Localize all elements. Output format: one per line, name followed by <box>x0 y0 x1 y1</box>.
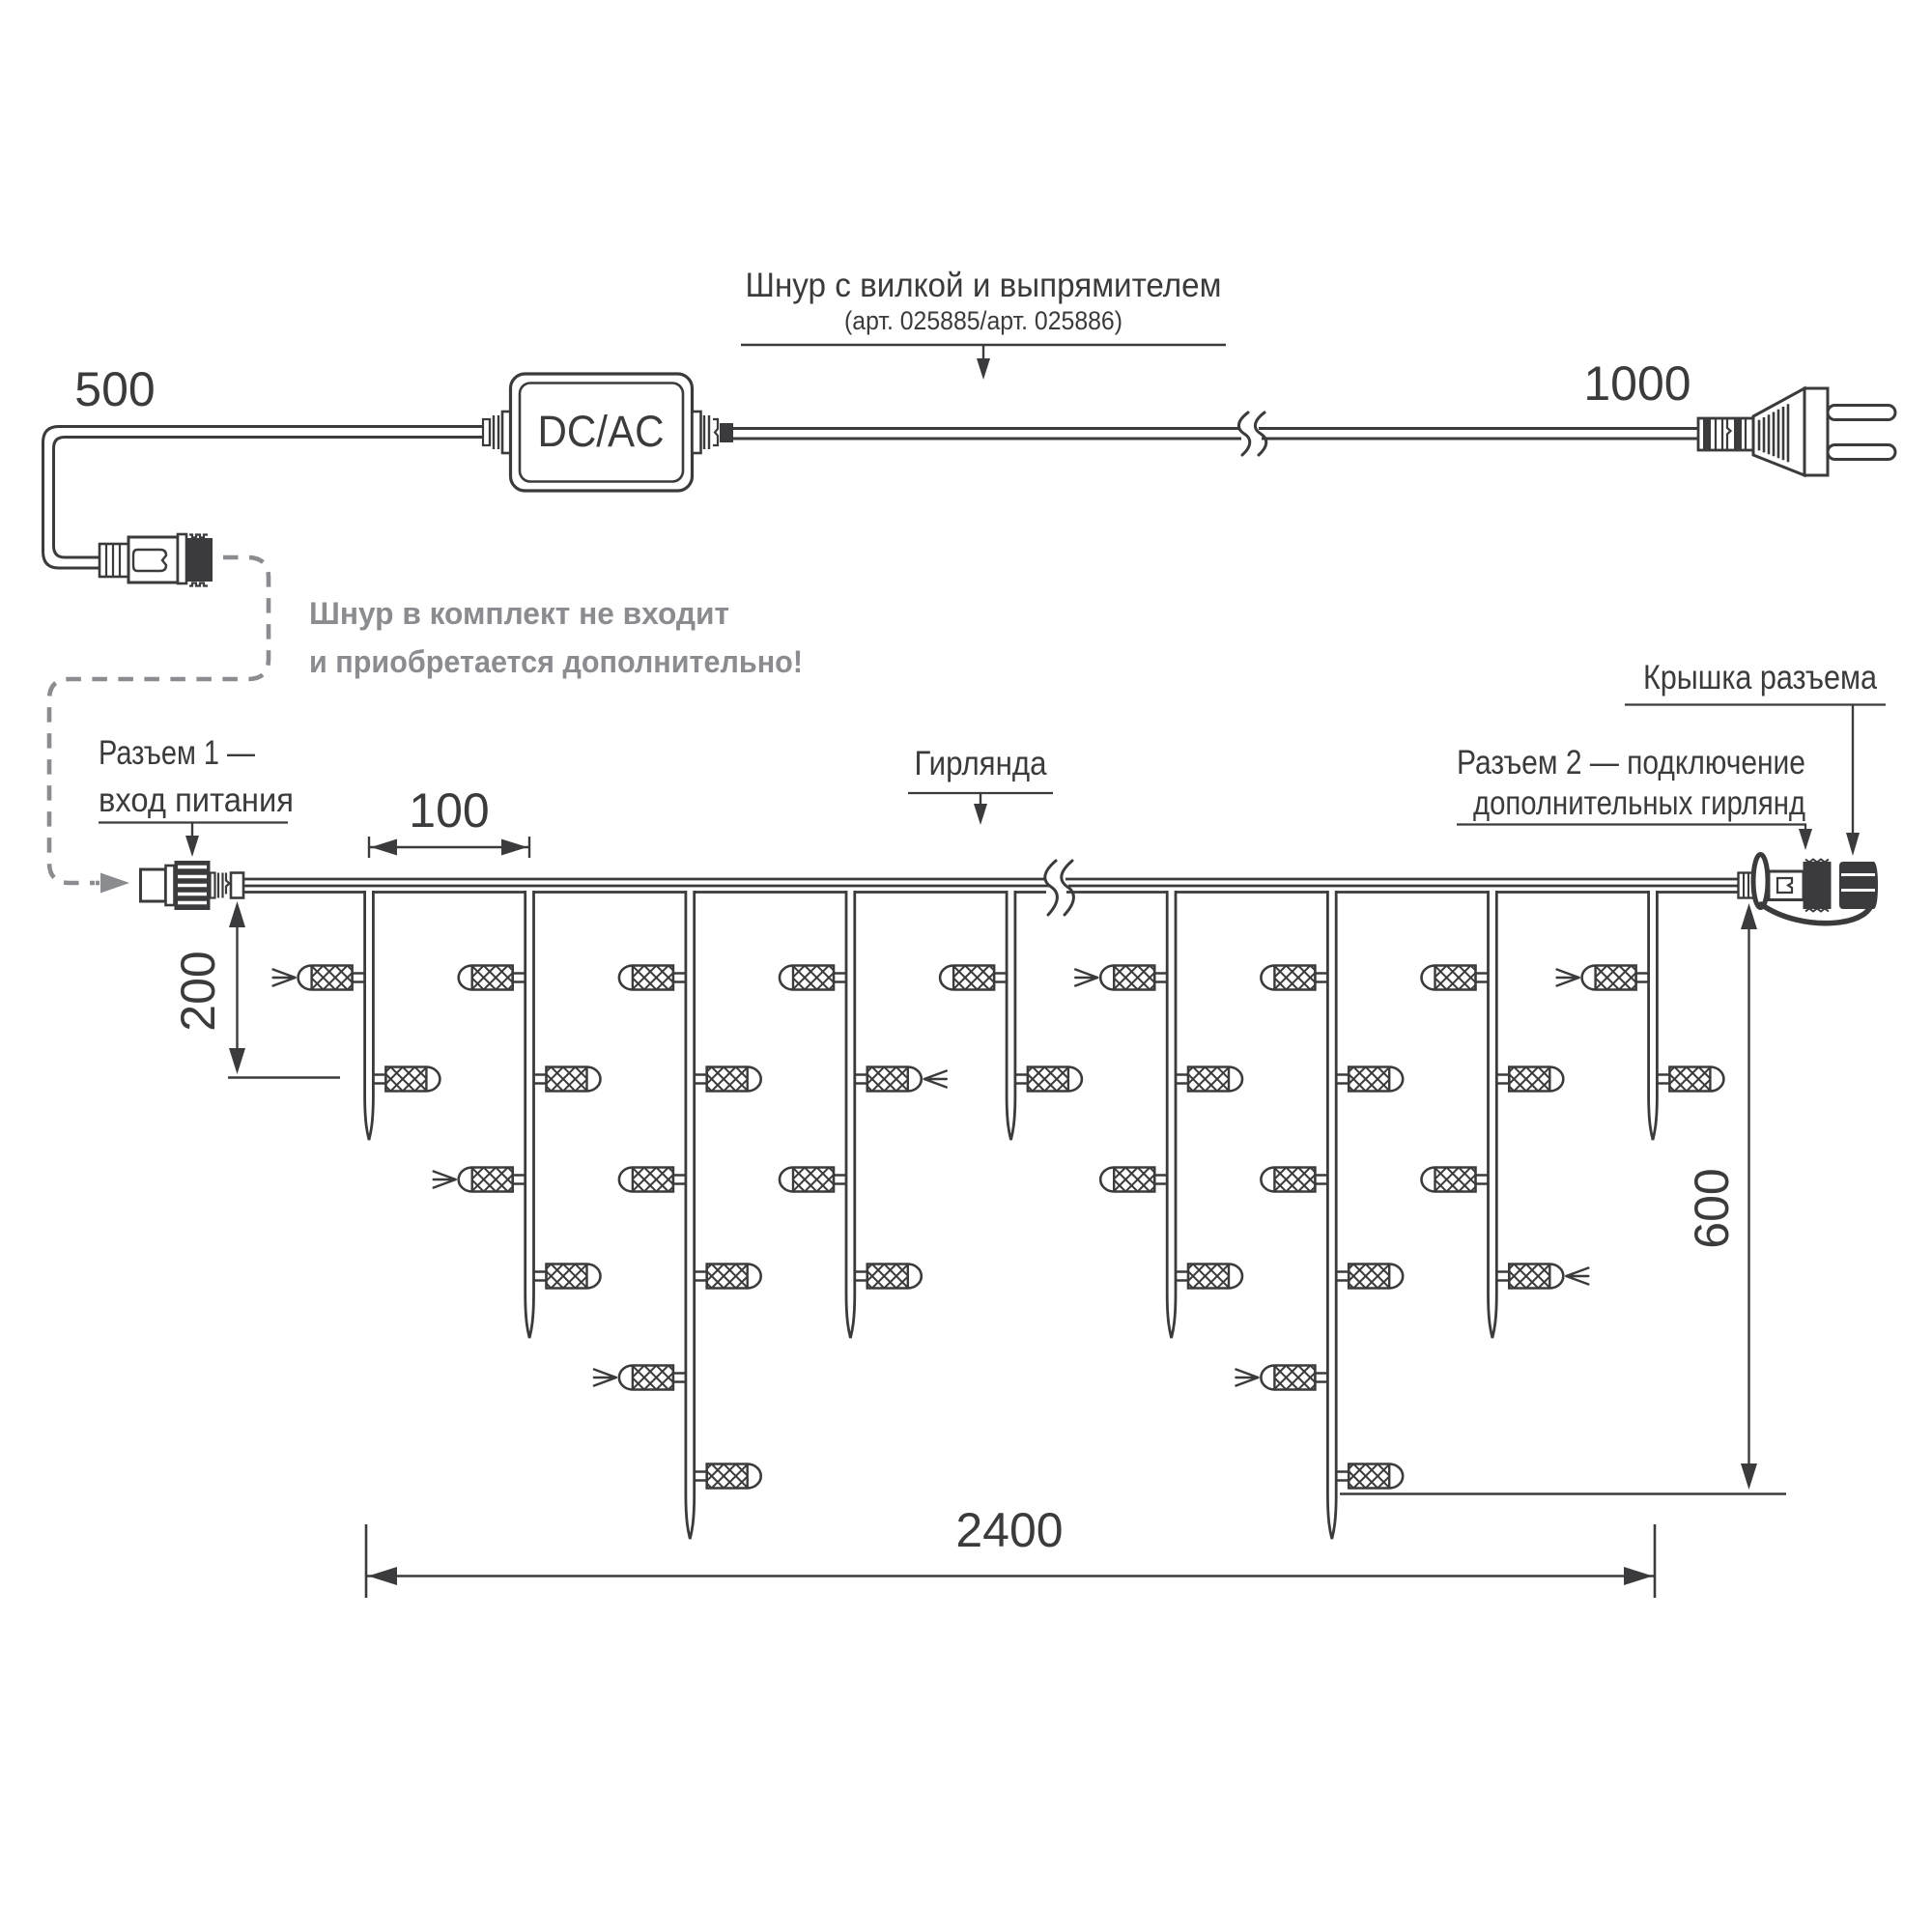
svg-text:1000: 1000 <box>1583 356 1690 411</box>
svg-text:и приобретается дополнительно!: и приобретается дополнительно! <box>309 644 803 679</box>
svg-text:Разъем 2 — подключение: Разъем 2 — подключение <box>1457 744 1805 781</box>
svg-text:(арт. 025885/арт. 025886): (арт. 025885/арт. 025886) <box>844 306 1122 335</box>
svg-text:DC/AC: DC/AC <box>538 407 665 456</box>
svg-text:Гирлянда: Гирлянда <box>915 745 1047 782</box>
svg-text:Крышка разъема: Крышка разъема <box>1643 659 1877 696</box>
svg-text:500: 500 <box>74 362 155 416</box>
svg-text:200: 200 <box>171 951 225 1031</box>
svg-text:2400: 2400 <box>955 1503 1063 1557</box>
svg-text:вход питания: вход питания <box>99 781 294 819</box>
svg-text:600: 600 <box>1685 1168 1739 1248</box>
svg-text:100: 100 <box>409 783 489 838</box>
svg-text:Шнур с вилкой и выпрямителем: Шнур с вилкой и выпрямителем <box>746 267 1222 304</box>
svg-text:Шнур в комплект не входит: Шнур в комплект не входит <box>309 596 729 631</box>
svg-text:Разъем 1 —: Разъем 1 — <box>99 734 255 772</box>
svg-text:дополнительных гирлянд: дополнительных гирлянд <box>1473 784 1805 822</box>
